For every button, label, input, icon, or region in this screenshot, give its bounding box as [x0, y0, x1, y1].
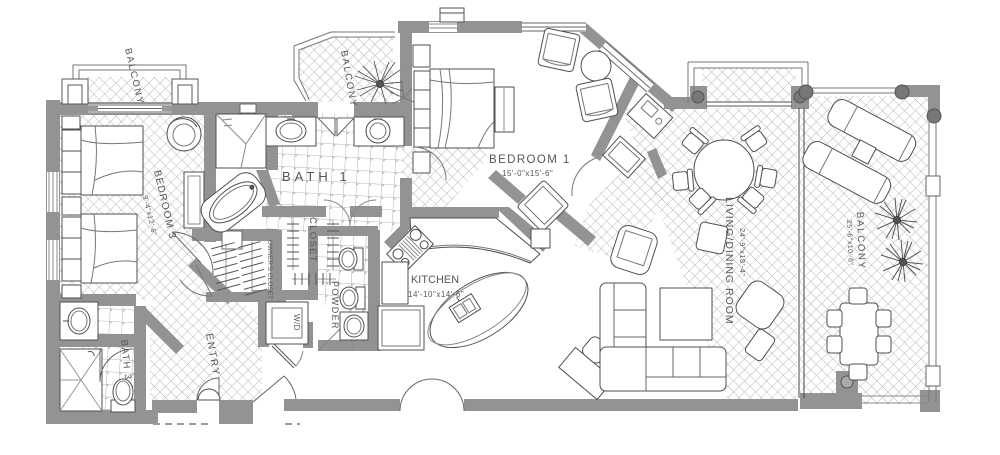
- svg-text:KITCHEN: KITCHEN: [411, 274, 459, 286]
- svg-text:OWNER'S CLOSET: OWNER'S CLOSET: [266, 240, 273, 299]
- svg-text:LIVING/DINING ROOM: LIVING/DINING ROOM: [723, 197, 735, 325]
- svg-text:BATH 1: BATH 1: [282, 169, 351, 184]
- svg-text:POWDER: POWDER: [330, 281, 340, 330]
- svg-text:24'-9"x18'-4": 24'-9"x18'-4": [738, 228, 747, 276]
- svg-text:BALCONY: BALCONY: [854, 212, 867, 270]
- svg-text:14'-10"x14'-6": 14'-10"x14'-6": [408, 290, 464, 299]
- svg-text:15'-0"x15'-6": 15'-0"x15'-6": [502, 169, 553, 178]
- svg-text:BEDROOM 1: BEDROOM 1: [489, 154, 571, 166]
- svg-text:W/D: W/D: [292, 314, 301, 331]
- svg-text:CLOSET: CLOSET: [307, 217, 318, 263]
